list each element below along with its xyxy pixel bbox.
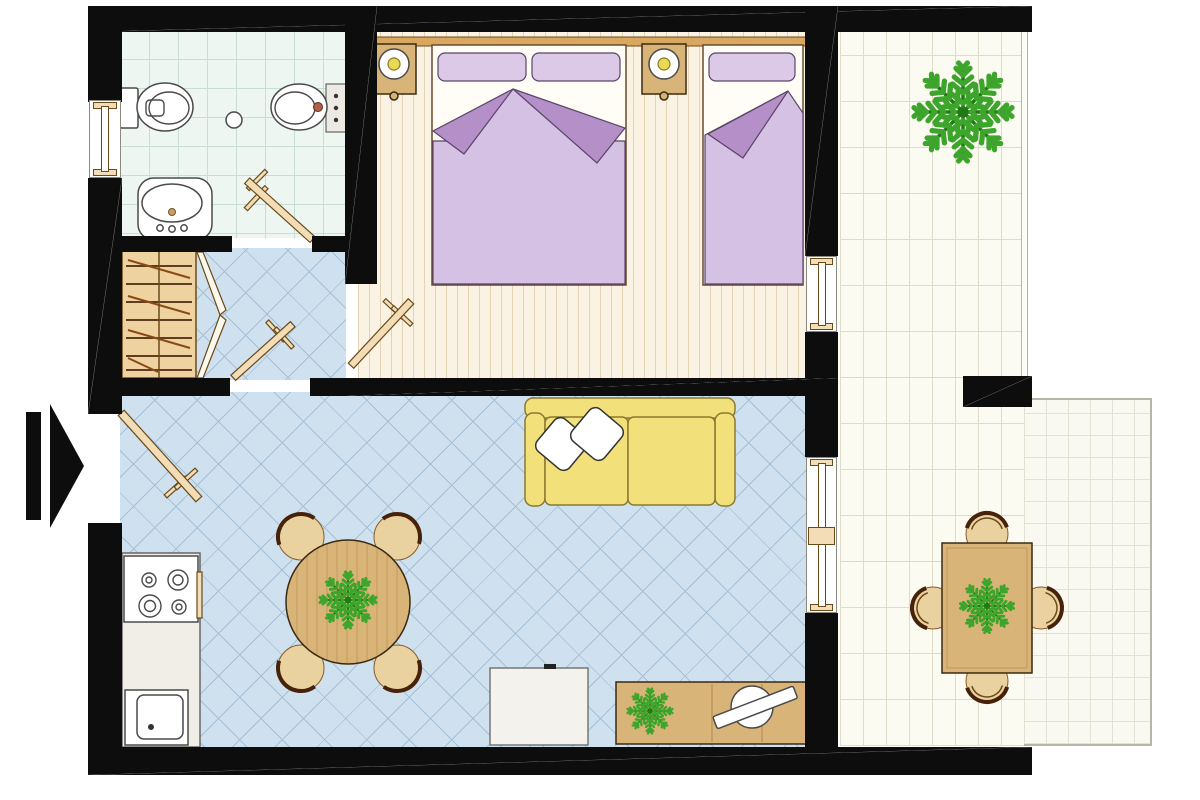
living-room-balcony-door (806, 457, 837, 613)
window-glass (818, 262, 826, 326)
wall-hall-bottom-right (310, 378, 350, 396)
toilet (120, 83, 193, 131)
terrace-set (907, 508, 1068, 708)
window-handle-block (808, 527, 835, 545)
tv-sideboard (616, 682, 806, 744)
single-bed (703, 45, 803, 285)
double-bed (432, 45, 626, 285)
wall-hall-bedroom (345, 6, 377, 284)
wall-left-upper (88, 6, 122, 102)
stove (124, 556, 198, 622)
entrance-arrow-head (50, 404, 84, 528)
wall-bottom (88, 747, 1032, 775)
bedroom-window (806, 256, 837, 332)
washbasin (138, 178, 212, 240)
wardrobe-door-open (197, 315, 226, 378)
wall-left-lower (88, 523, 122, 749)
wall-right-upper (805, 6, 838, 256)
wall-bathroom-bottom-right (312, 236, 347, 252)
wall-bathroom-bottom-left (120, 236, 232, 252)
pillow (438, 53, 526, 81)
wall-balcony-divider (963, 376, 1032, 407)
floor-drain (226, 112, 242, 128)
bathroom-window (89, 100, 121, 178)
bathroom-door (244, 169, 315, 242)
entrance-door (118, 410, 202, 502)
bedroom-door (348, 299, 414, 369)
kitchenette (122, 553, 202, 747)
dining-set (269, 505, 429, 700)
pillow (709, 53, 795, 81)
oven-handle (197, 572, 202, 618)
nightstand-right (642, 44, 686, 100)
wall-right-lower (805, 613, 838, 749)
bidet (271, 84, 346, 132)
hallway-door (231, 320, 295, 380)
window-glass (101, 106, 109, 172)
pillow (532, 53, 620, 81)
wardrobe (122, 250, 226, 378)
balcony-plant (914, 63, 1012, 161)
wall-bedroom-living (345, 378, 838, 396)
wall-top (88, 6, 1032, 32)
sofa (525, 398, 735, 506)
white-chest (490, 664, 588, 745)
entrance-arrow-bar (26, 412, 41, 520)
nightstand-left (372, 44, 416, 100)
floor-plan (0, 0, 1200, 800)
wardrobe-door-open (197, 252, 226, 315)
entrance-arrow-icon (26, 404, 86, 528)
wall-hall-bottom-left (110, 378, 230, 396)
